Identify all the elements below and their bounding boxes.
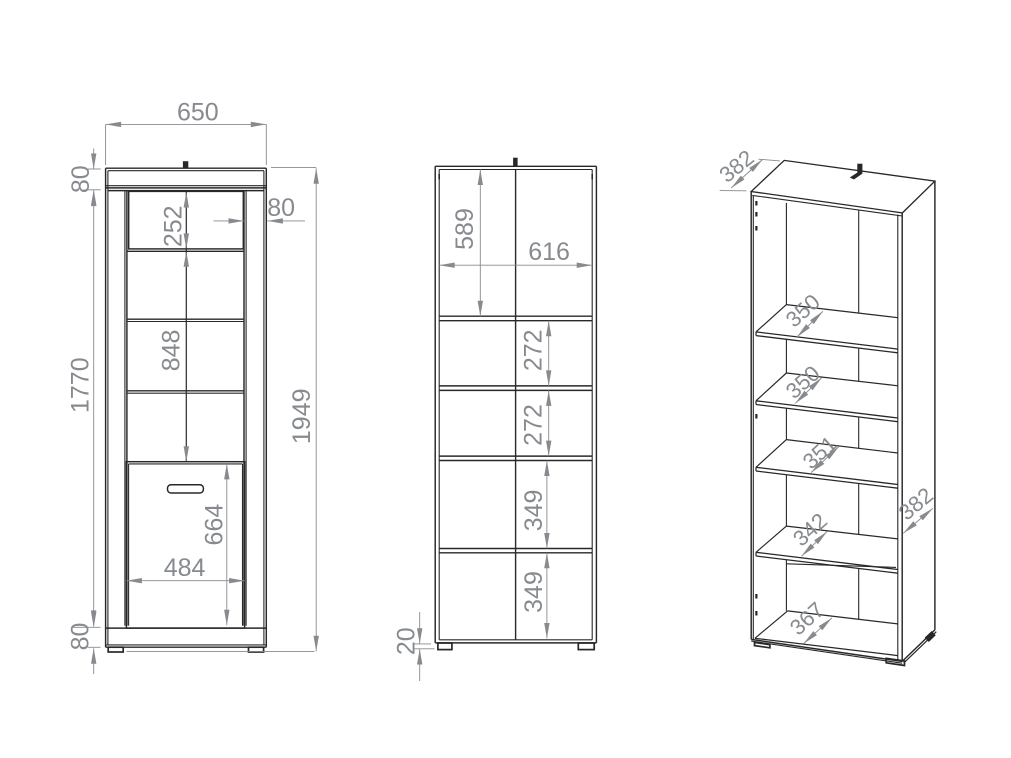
svg-text:272: 272 xyxy=(519,404,547,446)
svg-text:349: 349 xyxy=(520,490,548,532)
svg-text:252: 252 xyxy=(159,205,187,247)
svg-text:80: 80 xyxy=(67,165,95,193)
svg-text:589: 589 xyxy=(451,208,479,250)
svg-text:80: 80 xyxy=(67,623,95,651)
svg-text:848: 848 xyxy=(158,330,186,372)
svg-text:272: 272 xyxy=(519,329,547,371)
svg-text:650: 650 xyxy=(177,99,219,127)
svg-text:484: 484 xyxy=(164,554,206,582)
svg-text:349: 349 xyxy=(520,571,548,613)
svg-text:80: 80 xyxy=(267,194,295,222)
svg-text:20: 20 xyxy=(392,627,420,655)
svg-text:1949: 1949 xyxy=(288,388,316,444)
svg-text:1770: 1770 xyxy=(66,357,94,413)
svg-text:616: 616 xyxy=(528,238,570,266)
svg-text:664: 664 xyxy=(201,504,229,546)
